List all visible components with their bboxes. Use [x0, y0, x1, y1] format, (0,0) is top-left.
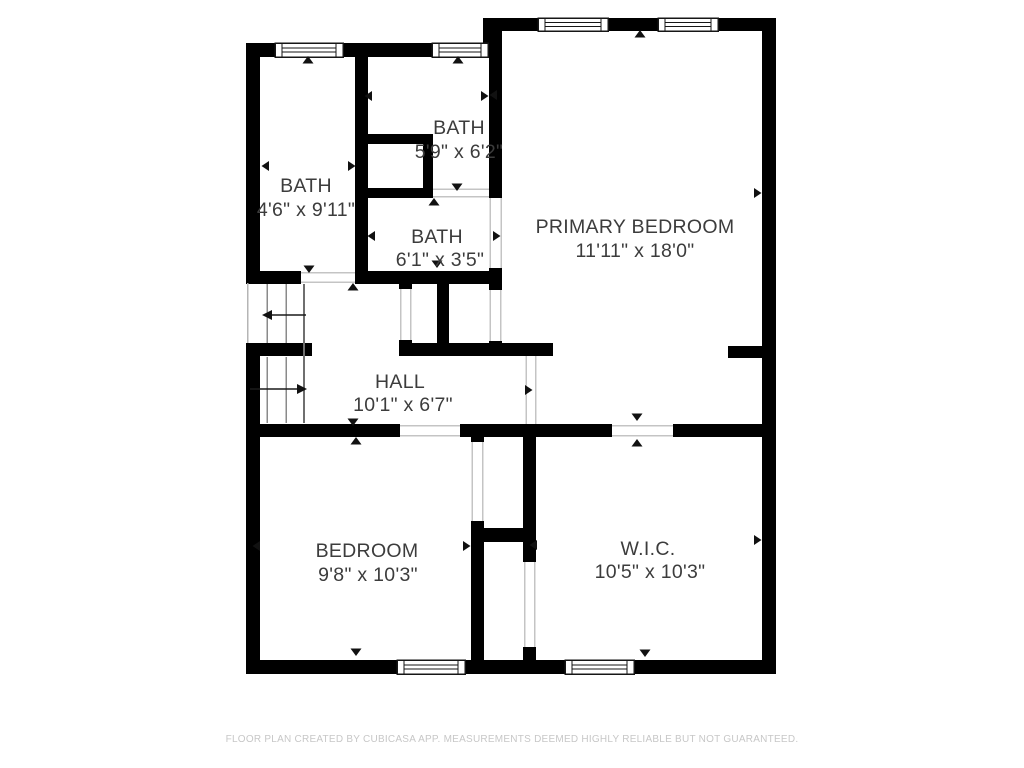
marker-right-icon: [481, 91, 489, 101]
marker-right-icon: [525, 385, 533, 395]
room-dimensions: 6'1" x 3'5": [396, 249, 485, 271]
marker-up-icon: [429, 198, 440, 206]
window-icon: [397, 660, 465, 674]
door-opening: [400, 426, 460, 436]
room-label-primary-bedroom: PRIMARY BEDROOM 11'11" x 18'0": [536, 216, 735, 262]
room-name: BEDROOM: [316, 540, 419, 562]
footer-disclaimer: FLOOR PLAN CREATED BY CUBICASA APP. MEAS…: [0, 734, 1024, 745]
room-label-bedroom: BEDROOM 9'8" x 10'3": [316, 540, 419, 586]
window-icon: [538, 18, 608, 31]
stair-arrow-up: [262, 310, 306, 320]
window-icon: [432, 43, 488, 57]
marker-right-icon: [754, 188, 762, 198]
marker-left-icon: [368, 231, 376, 241]
window-icon: [565, 660, 634, 674]
door-opening: [433, 189, 489, 197]
door-opening: [490, 290, 501, 341]
marker-up-icon: [351, 437, 362, 445]
room-dimensions: 10'5" x 10'3": [595, 561, 706, 583]
marker-right-icon: [348, 161, 356, 171]
floor-plan-canvas: BATH 5'9" x 6'2" BATH 4'6" x 9'11" BATH …: [0, 0, 1024, 768]
marker-right-icon: [754, 535, 762, 545]
door-opening: [401, 289, 411, 340]
room-name: BATH: [433, 117, 485, 139]
window-icon: [658, 18, 718, 31]
room-label-bath-mid: BATH 6'1" x 3'5": [396, 226, 485, 271]
door-opening: [525, 562, 535, 647]
room-dimensions: 11'11" x 18'0": [575, 240, 694, 262]
marker-up-icon: [635, 30, 646, 38]
door-opening: [301, 273, 355, 283]
marker-down-icon: [640, 650, 651, 658]
marker-down-icon: [452, 184, 463, 192]
room-dimensions: 10'1" x 6'7": [353, 394, 453, 416]
marker-down-icon: [351, 649, 362, 657]
marker-up-icon: [632, 439, 643, 447]
room-name: HALL: [375, 371, 425, 393]
room-label-wic: W.I.C. 10'5" x 10'3": [595, 538, 706, 583]
room-label-bath-left: BATH 4'6" x 9'11": [257, 175, 355, 221]
door-opening: [612, 426, 673, 436]
room-name: PRIMARY BEDROOM: [536, 216, 735, 238]
marker-right-icon: [463, 541, 471, 551]
room-name: BATH: [280, 175, 332, 197]
door-opening: [472, 442, 483, 521]
room-dimensions: 9'8" x 10'3": [318, 564, 418, 586]
marker-left-icon: [262, 161, 270, 171]
room-label-hall: HALL 10'1" x 6'7": [353, 371, 453, 416]
marker-down-icon: [632, 414, 643, 422]
floor-plan-page: BATH 5'9" x 6'2" BATH 4'6" x 9'11" BATH …: [0, 0, 1024, 768]
room-name: BATH: [411, 226, 463, 248]
marker-up-icon: [348, 283, 359, 291]
room-dimensions: 5'9" x 6'2": [415, 141, 504, 163]
marker-right-icon: [493, 231, 501, 241]
window-icon: [275, 43, 343, 57]
room-name: W.I.C.: [621, 538, 676, 560]
room-dimensions: 4'6" x 9'11": [257, 199, 355, 221]
